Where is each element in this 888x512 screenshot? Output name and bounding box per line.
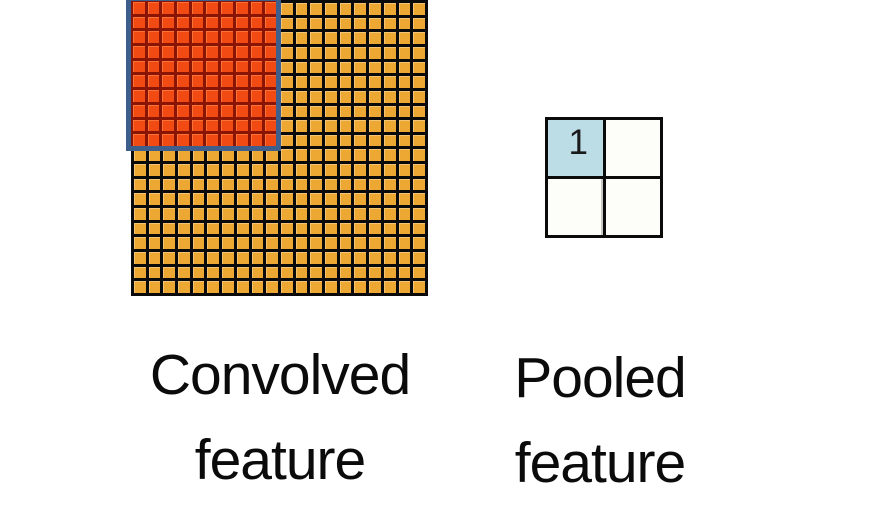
grid-cell: [340, 267, 352, 279]
grid-cell: [384, 18, 396, 30]
grid-cell: [413, 267, 425, 279]
grid-cell: [133, 134, 145, 146]
grid-cell: [178, 179, 190, 191]
grid-cell: [369, 281, 381, 293]
grid-cell: [207, 223, 219, 235]
pooling-window-cells: [131, 0, 279, 148]
grid-cell: [251, 2, 263, 14]
grid-cell: [325, 3, 337, 15]
grid-cell: [369, 223, 381, 235]
grid-cell: [252, 237, 264, 249]
grid-cell: [162, 2, 174, 14]
grid-cell: [162, 120, 174, 132]
grid-cell: [354, 32, 366, 44]
grid-cell: [265, 75, 277, 87]
grid-cell: [265, 31, 277, 43]
grid-cell: [237, 179, 249, 191]
grid-cell: [413, 164, 425, 176]
grid-cell: [281, 267, 293, 279]
grid-cell: [310, 193, 322, 205]
grid-cell: [369, 106, 381, 118]
grid-cell: [369, 252, 381, 264]
grid-cell: [266, 179, 278, 191]
grid-cell: [310, 18, 322, 30]
grid-cell: [384, 62, 396, 74]
grid-cell: [399, 237, 411, 249]
grid-cell: [236, 31, 248, 43]
grid-cell: [221, 46, 233, 58]
grid-cell: [134, 223, 146, 235]
grid-cell: [252, 223, 264, 235]
grid-cell: [310, 179, 322, 191]
grid-cell: [413, 62, 425, 74]
grid-cell: [149, 179, 161, 191]
grid-cell: [384, 91, 396, 103]
pooled-label-line1: Pooled: [455, 336, 745, 421]
grid-cell: [178, 208, 190, 220]
grid-cell: [237, 267, 249, 279]
grid-cell: [148, 46, 160, 58]
grid-cell: [221, 61, 233, 73]
grid-cell: [340, 223, 352, 235]
grid-cell: [236, 2, 248, 14]
grid-cell: [413, 47, 425, 59]
grid-cell: [162, 46, 174, 58]
grid-cell: [163, 252, 175, 264]
grid-cell: [399, 223, 411, 235]
grid-cell: [148, 61, 160, 73]
grid-cell: [310, 32, 322, 44]
grid-cell: [354, 18, 366, 30]
grid-cell: [252, 281, 264, 293]
grid-cell: [221, 2, 233, 14]
grid-cell: [413, 149, 425, 161]
grid-cell: [399, 18, 411, 30]
grid-cell: [340, 18, 352, 30]
grid-cell: [384, 237, 396, 249]
grid-cell: [413, 193, 425, 205]
grid-cell: [207, 208, 219, 220]
grid-cell: [384, 135, 396, 147]
grid-cell: [399, 76, 411, 88]
grid-cell: [134, 179, 146, 191]
grid-cell: [296, 120, 308, 132]
grid-cell: [325, 237, 337, 249]
grid-cell: [163, 179, 175, 191]
grid-cell: [221, 90, 233, 102]
grid-cell: [266, 237, 278, 249]
grid-cell: [236, 75, 248, 87]
convolved-label-line1: Convolved: [110, 333, 450, 418]
grid-cell: [252, 164, 264, 176]
grid-cell: [325, 120, 337, 132]
pooled-cell-value: 1: [569, 125, 588, 160]
grid-cell: [310, 281, 322, 293]
grid-cell: [399, 32, 411, 44]
grid-cell: [369, 18, 381, 30]
grid-cell: [399, 3, 411, 15]
grid-cell: [369, 76, 381, 88]
grid-cell: [149, 149, 161, 161]
grid-cell: [340, 135, 352, 147]
grid-cell: [369, 135, 381, 147]
grid-cell: [354, 281, 366, 293]
grid-cell: [413, 135, 425, 147]
grid-cell: [222, 164, 234, 176]
grid-cell: [163, 223, 175, 235]
grid-cell: [354, 120, 366, 132]
grid-cell: [207, 149, 219, 161]
grid-cell: [325, 267, 337, 279]
grid-cell: [237, 223, 249, 235]
grid-cell: [133, 105, 145, 117]
grid-cell: [281, 18, 293, 30]
grid-cell: [296, 208, 308, 220]
grid-cell: [206, 105, 218, 117]
grid-cell: [252, 193, 264, 205]
grid-cell: [206, 46, 218, 58]
grid-cell: [354, 267, 366, 279]
grid-cell: [237, 281, 249, 293]
grid-cell: [354, 47, 366, 59]
grid-cell: [281, 149, 293, 161]
grid-cell: [163, 208, 175, 220]
grid-cell: [413, 208, 425, 220]
grid-cell: [265, 61, 277, 73]
grid-cell: [340, 47, 352, 59]
grid-cell: [265, 105, 277, 117]
grid-cell: [296, 237, 308, 249]
grid-cell: [340, 149, 352, 161]
grid-cell: [178, 193, 190, 205]
grid-cell: [134, 193, 146, 205]
grid-cell: [399, 47, 411, 59]
grid-cell: [354, 223, 366, 235]
grid-cell: [325, 223, 337, 235]
grid-cell: [296, 149, 308, 161]
grid-cell: [133, 90, 145, 102]
grid-cell: [354, 252, 366, 264]
grid-cell: [399, 208, 411, 220]
grid-cell: [222, 223, 234, 235]
grid-cell: [192, 46, 204, 58]
grid-cell: [384, 47, 396, 59]
grid-cell: [369, 62, 381, 74]
grid-cell: [413, 120, 425, 132]
grid-cell: [369, 47, 381, 59]
grid-cell: [296, 106, 308, 118]
grid-cell: [399, 62, 411, 74]
grid-cell: [281, 179, 293, 191]
grid-cell: [354, 76, 366, 88]
grid-cell: [369, 32, 381, 44]
convolved-label-line2: feature: [110, 418, 450, 503]
grid-cell: [296, 164, 308, 176]
grid-cell: [340, 164, 352, 176]
grid-cell: [296, 18, 308, 30]
grid-cell: [310, 76, 322, 88]
grid-cell: [192, 134, 204, 146]
grid-cell: [236, 46, 248, 58]
grid-cell: [340, 281, 352, 293]
grid-cell: [237, 237, 249, 249]
grid-cell: [133, 61, 145, 73]
grid-cell: [149, 237, 161, 249]
grid-cell: [399, 149, 411, 161]
grid-cell: [207, 164, 219, 176]
grid-cell: [178, 252, 190, 264]
grid-cell: [296, 62, 308, 74]
grid-cell: [296, 76, 308, 88]
grid-cell: [149, 208, 161, 220]
grid-cell: [193, 267, 205, 279]
grid-cell: [384, 179, 396, 191]
grid-cell: [222, 179, 234, 191]
grid-cell: [149, 223, 161, 235]
grid-cell: [281, 135, 293, 147]
grid-cell: [281, 120, 293, 132]
grid-cell: [310, 47, 322, 59]
grid-cell: [384, 281, 396, 293]
grid-cell: [133, 46, 145, 58]
grid-cell: [281, 193, 293, 205]
grid-cell: [354, 193, 366, 205]
grid-cell: [251, 17, 263, 29]
grid-cell: [236, 90, 248, 102]
grid-cell: [413, 223, 425, 235]
grid-cell: [221, 75, 233, 87]
grid-cell: [162, 75, 174, 87]
grid-cell: [399, 193, 411, 205]
grid-cell: [149, 193, 161, 205]
grid-cell: [384, 76, 396, 88]
grid-cell: [192, 75, 204, 87]
grid-cell: [369, 267, 381, 279]
grid-cell: [162, 61, 174, 73]
grid-cell: [281, 47, 293, 59]
grid-cell: [148, 90, 160, 102]
grid-cell: [222, 252, 234, 264]
grid-cell: [281, 252, 293, 264]
grid-cell: [413, 3, 425, 15]
grid-cell: [163, 149, 175, 161]
grid-cell: [206, 120, 218, 132]
grid-cell: [413, 32, 425, 44]
grid-cell: [251, 120, 263, 132]
grid-cell: [281, 91, 293, 103]
grid-cell: [369, 237, 381, 249]
grid-cell: [281, 3, 293, 15]
grid-cell: [325, 281, 337, 293]
grid-cell: [310, 91, 322, 103]
grid-cell: [207, 281, 219, 293]
grid-cell: [148, 17, 160, 29]
grid-cell: [266, 267, 278, 279]
grid-cell: [354, 149, 366, 161]
grid-cell: [236, 17, 248, 29]
grid-cell: [310, 237, 322, 249]
grid-cell: [193, 281, 205, 293]
grid-cell: [354, 62, 366, 74]
grid-cell: [206, 90, 218, 102]
grid-cell: [221, 31, 233, 43]
grid-cell: [413, 18, 425, 30]
grid-cell: [325, 76, 337, 88]
grid-cell: [252, 208, 264, 220]
grid-cell: [148, 31, 160, 43]
grid-cell: [325, 135, 337, 147]
grid-cell: [163, 267, 175, 279]
grid-cell: [221, 17, 233, 29]
grid-cell: [237, 193, 249, 205]
grid-cell: [177, 46, 189, 58]
grid-cell: [266, 281, 278, 293]
grid-cell: [325, 32, 337, 44]
grid-cell: [266, 252, 278, 264]
grid-cell: [384, 267, 396, 279]
grid-cell: [413, 281, 425, 293]
grid-cell: [236, 120, 248, 132]
grid-cell: [237, 252, 249, 264]
grid-cell: [149, 281, 161, 293]
grid-cell: [192, 120, 204, 132]
grid-cell: [206, 75, 218, 87]
grid-cell: [325, 106, 337, 118]
grid-cell: [325, 179, 337, 191]
grid-cell: [148, 75, 160, 87]
grid-cell: [384, 149, 396, 161]
grid-cell: [149, 252, 161, 264]
grid-cell: [207, 252, 219, 264]
grid-cell: [310, 120, 322, 132]
pooled-feature-grid: 1: [545, 117, 663, 238]
grid-cell: [163, 193, 175, 205]
grid-cell: [296, 193, 308, 205]
grid-cell: [207, 193, 219, 205]
grid-cell: [222, 281, 234, 293]
grid-cell: [206, 134, 218, 146]
grid-cell: [369, 208, 381, 220]
grid-cell: [251, 75, 263, 87]
grid-cell: [281, 208, 293, 220]
grid-cell: [413, 91, 425, 103]
pooling-diagram: 1 Convolved feature Pooled feature: [0, 0, 888, 512]
grid-cell: [222, 208, 234, 220]
grid-cell: [251, 134, 263, 146]
grid-cell: [236, 105, 248, 117]
grid-cell: [265, 90, 277, 102]
grid-cell: [340, 120, 352, 132]
grid-cell: [310, 135, 322, 147]
grid-cell: [193, 252, 205, 264]
grid-cell: [133, 31, 145, 43]
grid-cell: [399, 135, 411, 147]
grid-cell: [340, 237, 352, 249]
grid-cell: [133, 2, 145, 14]
grid-cell: [193, 193, 205, 205]
grid-cell: [251, 31, 263, 43]
grid-cell: 1: [548, 120, 603, 176]
grid-cell: [281, 237, 293, 249]
grid-cell: [163, 237, 175, 249]
grid-cell: [384, 252, 396, 264]
grid-cell: [193, 179, 205, 191]
grid-cell: [281, 106, 293, 118]
grid-cell: [266, 149, 278, 161]
grid-cell: [221, 105, 233, 117]
grid-cell: [340, 193, 352, 205]
grid-cell: [237, 208, 249, 220]
grid-cell: [193, 149, 205, 161]
grid-cell: [296, 3, 308, 15]
grid-cell: [399, 252, 411, 264]
grid-cell: [265, 120, 277, 132]
grid-cell: [399, 281, 411, 293]
grid-cell: [399, 164, 411, 176]
grid-cell: [192, 17, 204, 29]
grid-cell: [354, 179, 366, 191]
grid-cell: [354, 106, 366, 118]
grid-cell: [281, 32, 293, 44]
grid-cell: [325, 252, 337, 264]
grid-cell: [134, 208, 146, 220]
grid-cell: [340, 32, 352, 44]
grid-cell: [296, 91, 308, 103]
grid-cell: [134, 149, 146, 161]
grid-cell: [369, 149, 381, 161]
grid-cell: [399, 106, 411, 118]
grid-cell: [325, 193, 337, 205]
grid-cell: [266, 208, 278, 220]
grid-cell: [252, 149, 264, 161]
grid-cell: [177, 134, 189, 146]
grid-cell: [148, 105, 160, 117]
grid-cell: [340, 106, 352, 118]
grid-cell: [266, 164, 278, 176]
grid-cell: [162, 90, 174, 102]
grid-cell: [222, 193, 234, 205]
grid-cell: [251, 61, 263, 73]
grid-cell: [310, 62, 322, 74]
grid-cell: [325, 149, 337, 161]
grid-cell: [354, 164, 366, 176]
grid-cell: [193, 164, 205, 176]
grid-cell: [207, 267, 219, 279]
grid-cell: [178, 281, 190, 293]
grid-cell: [325, 62, 337, 74]
grid-cell: [252, 267, 264, 279]
grid-cell: [413, 237, 425, 249]
grid-cell: [178, 223, 190, 235]
grid-cell: [384, 223, 396, 235]
grid-cell: [178, 237, 190, 249]
grid-cell: [177, 17, 189, 29]
grid-cell: [310, 164, 322, 176]
grid-cell: [265, 2, 277, 14]
grid-cell: [384, 193, 396, 205]
grid-cell: [162, 31, 174, 43]
grid-cell: [162, 134, 174, 146]
grid-cell: [251, 105, 263, 117]
grid-cell: [192, 2, 204, 14]
grid-cell: [177, 2, 189, 14]
grid-cell: [163, 281, 175, 293]
grid-cell: [354, 135, 366, 147]
grid-cell: [177, 61, 189, 73]
grid-cell: [296, 267, 308, 279]
grid-cell: [369, 120, 381, 132]
grid-cell: [177, 90, 189, 102]
